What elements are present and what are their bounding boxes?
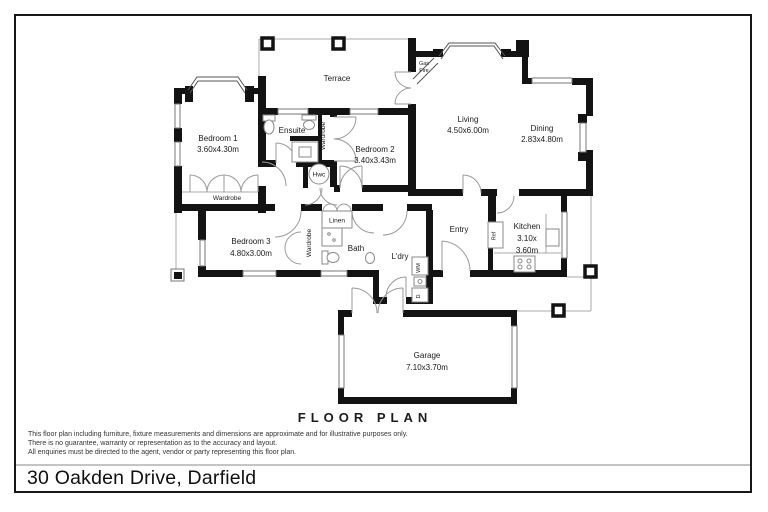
windows	[175, 78, 586, 388]
stove-icon	[527, 259, 531, 263]
room-label-bedroom2: Bedroom 2	[355, 145, 395, 154]
bath-shower-icon	[328, 233, 331, 236]
deck-post	[553, 305, 564, 316]
corner-post	[174, 272, 182, 279]
room-label-garage: Garage	[414, 351, 441, 360]
label-fridge: Ref	[492, 231, 498, 240]
label-wardrobe-bedroom3: Wardrobe	[306, 228, 313, 257]
floor-plan-page: Terrace Bedroom 1 3.60x4.30m Ensuite War…	[0, 0, 768, 512]
label-dryer: D	[416, 294, 422, 298]
room-dims-dining: 2.83x4.80m	[521, 135, 563, 144]
terrace-post	[262, 38, 273, 49]
room-label-bedroom3: Bedroom 3	[231, 237, 271, 246]
room-dims-bedroom1: 3.60x4.30m	[197, 145, 239, 154]
toilet-icon	[264, 120, 274, 134]
bath-shower-icon	[333, 239, 336, 242]
laundry-tub	[418, 280, 422, 284]
label-washing-machine: WM	[416, 263, 422, 273]
basin-icon	[302, 115, 316, 120]
room-dims-living: 4.50x6.00m	[447, 126, 489, 135]
sink-box	[546, 229, 559, 246]
room-label-bedroom1: Bedroom 1	[198, 134, 238, 143]
room-labels: Terrace Bedroom 1 3.60x4.30m Ensuite War…	[197, 61, 563, 372]
label-gas-fire: Fire	[419, 68, 428, 74]
stove-icon	[527, 265, 531, 269]
terrace-post	[333, 38, 344, 49]
disclaimer-line-2: There is no guarantee, warranty or repre…	[28, 440, 408, 449]
bath-shower-icon	[322, 228, 342, 246]
deck-post	[585, 266, 596, 277]
label-wardrobe-bedroom1: Wardrobe	[213, 195, 242, 202]
room-label-terrace: Terrace	[324, 74, 351, 83]
room-label-living: Living	[458, 115, 479, 124]
room-label-dining: Dining	[531, 124, 554, 133]
label-hwc: Hwc	[313, 172, 326, 179]
label-gas-fire: Gas	[419, 61, 429, 67]
address-separator-line	[16, 464, 750, 466]
disclaimer-line-1: This floor plan including furniture, fix…	[28, 431, 408, 440]
floor-plan-title: FLOOR PLAN	[215, 410, 515, 425]
room-dims-garage: 7.10x3.70m	[406, 363, 448, 372]
bay-windows	[188, 43, 505, 93]
basin-icon	[366, 253, 375, 264]
room-dims-kitchen-1: 3.10x	[517, 234, 537, 243]
label-linen: Linen	[329, 218, 345, 225]
stove-icon	[518, 265, 522, 269]
room-dims-bedroom2: 3.40x3.43m	[354, 156, 396, 165]
stove-icon	[518, 259, 522, 263]
room-label-laundry: L'dry	[391, 252, 408, 261]
shower-icon	[299, 147, 311, 157]
property-address: 30 Oakden Drive, Darfield	[27, 467, 256, 490]
walls	[174, 38, 593, 404]
room-label-entry: Entry	[450, 225, 469, 234]
room-label-bath: Bath	[348, 244, 364, 253]
toilet-icon	[327, 253, 339, 263]
room-label-ensuite: Ensuite	[279, 126, 306, 135]
label-wardrobe-bedroom2: Wardrobe	[320, 121, 327, 150]
room-dims-kitchen-2: 3.60m	[516, 246, 539, 255]
room-dims-bedroom3: 4.80x3.00m	[230, 249, 272, 258]
disclaimer: This floor plan including furniture, fix…	[28, 431, 408, 458]
disclaimer-line-3: All enquiries must be directed to the ag…	[28, 449, 408, 458]
room-label-kitchen: Kitchen	[514, 222, 541, 231]
stove-icon	[514, 256, 535, 272]
